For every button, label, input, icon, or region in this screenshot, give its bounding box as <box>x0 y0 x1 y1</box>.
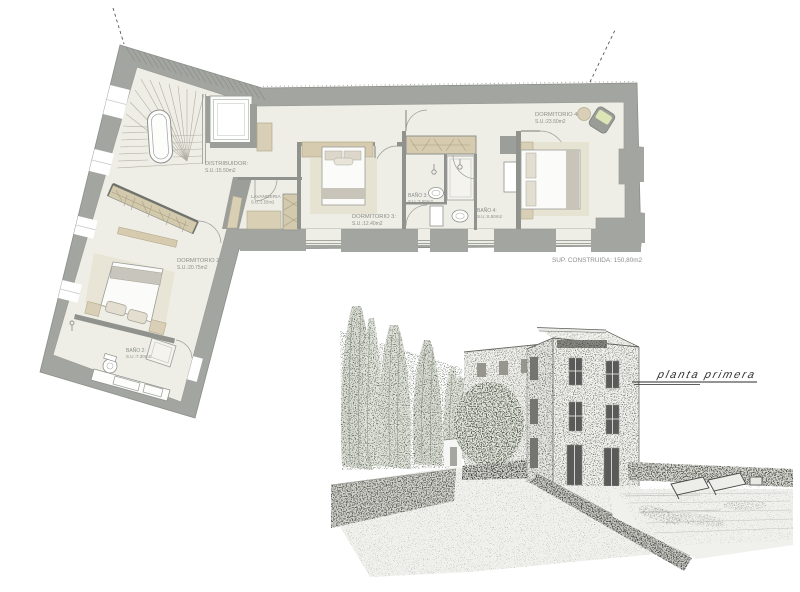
svg-text:S.U.:6.50m2: S.U.:6.50m2 <box>477 214 503 219</box>
svg-text:BAÑO 4:: BAÑO 4: <box>477 207 497 214</box>
svg-text:DORMITORIO 4:: DORMITORIO 4: <box>535 112 579 118</box>
svg-text:DORMITORIO 3:: DORMITORIO 3: <box>352 214 396 220</box>
svg-text:S.U.:15.50m2: S.U.:15.50m2 <box>205 168 236 174</box>
svg-text:S.U.:7.30m2: S.U.:7.30m2 <box>126 354 152 359</box>
svg-text:S.U.:2.55m2: S.U.:2.55m2 <box>251 200 275 205</box>
svg-text:S.U.:20.75m2: S.U.:20.75m2 <box>177 265 208 271</box>
svg-text:SUP. CONSTRUIDA: 150,80m2: SUP. CONSTRUIDA: 150,80m2 <box>552 257 643 264</box>
svg-text:S.U.:23.50m2: S.U.:23.50m2 <box>535 119 566 125</box>
svg-text:DISTRIBUIDOR:: DISTRIBUIDOR: <box>205 161 249 167</box>
svg-text:S.U.:3.60m2: S.U.:3.60m2 <box>408 199 434 204</box>
svg-text:BAÑO 2:: BAÑO 2: <box>126 347 146 354</box>
svg-text:S.U.:12.40m2: S.U.:12.40m2 <box>352 221 383 227</box>
svg-text:DORMITORIO 2:: DORMITORIO 2: <box>177 258 221 264</box>
svg-text:planta primera: planta primera <box>655 369 757 381</box>
svg-text:BAÑO 3:: BAÑO 3: <box>408 192 428 199</box>
